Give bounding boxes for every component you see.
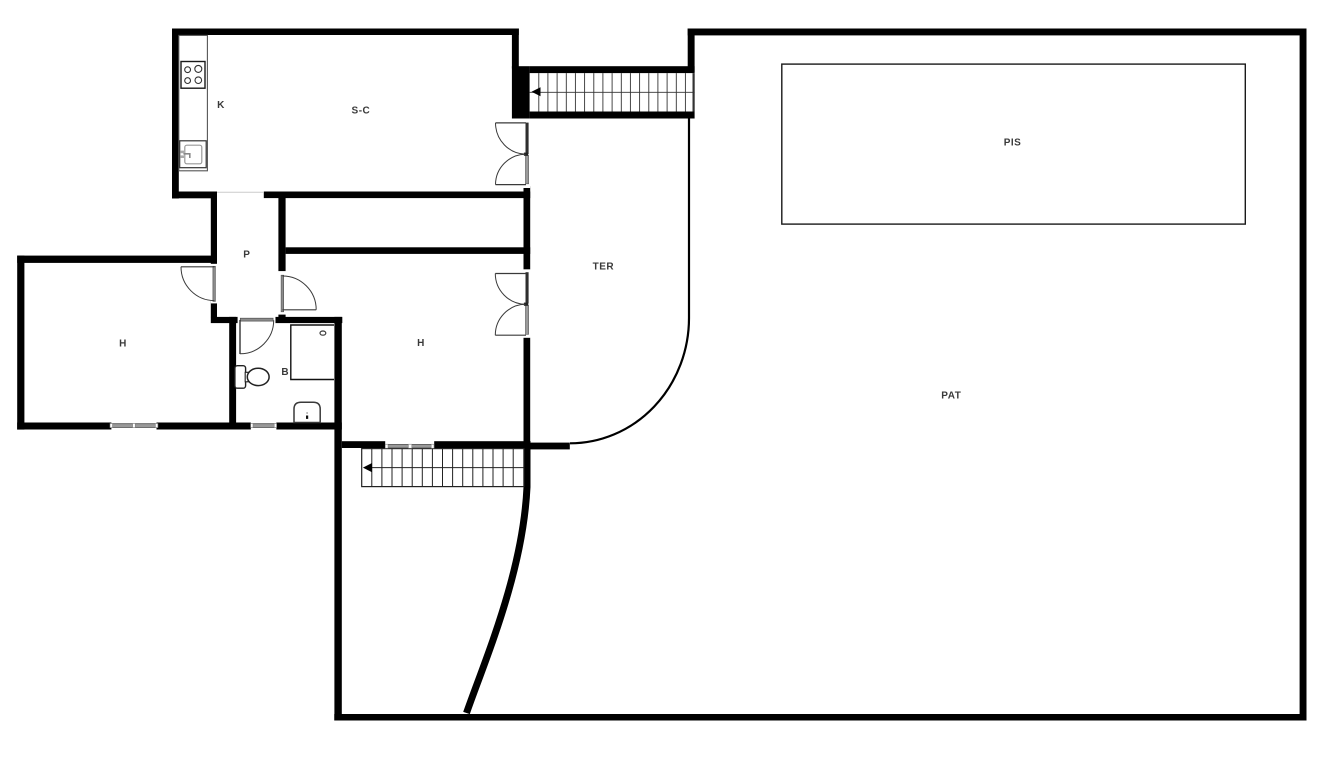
svg-text:PIS: PIS: [1004, 137, 1022, 148]
svg-text:TER: TER: [593, 262, 615, 273]
svg-text:S-C: S-C: [352, 106, 371, 117]
svg-text:K: K: [217, 100, 225, 111]
svg-text:H: H: [417, 338, 424, 349]
svg-text:P: P: [243, 249, 250, 260]
svg-text:B: B: [281, 367, 288, 378]
svg-text:H: H: [119, 338, 126, 349]
svg-text:PAT: PAT: [941, 391, 961, 402]
